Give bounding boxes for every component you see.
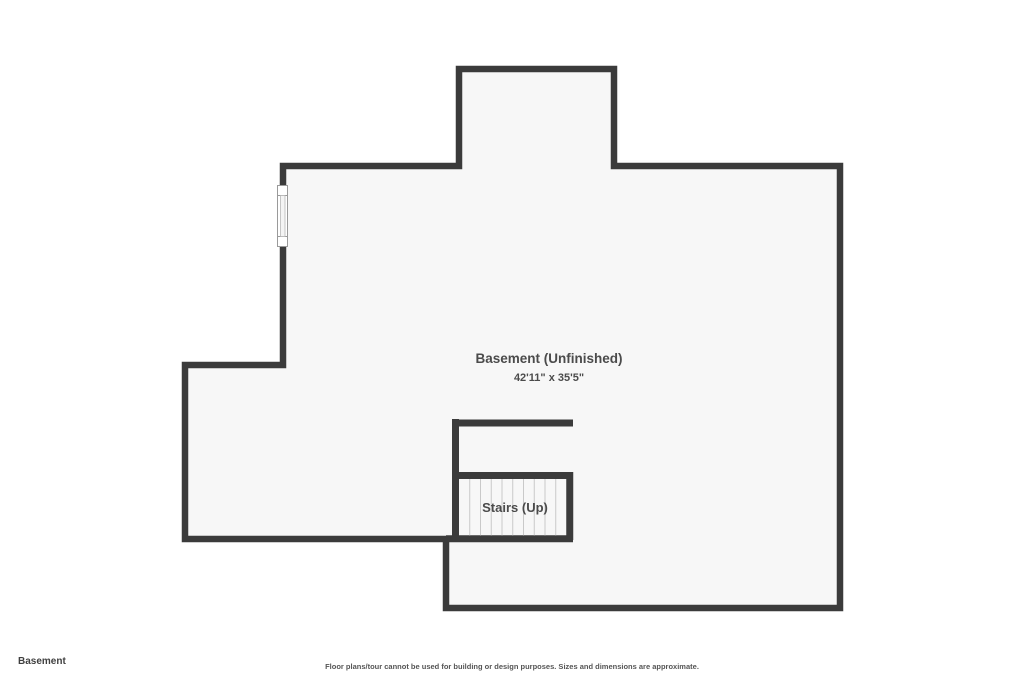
room-dimensions-basement: 42'11" x 35'5" [514,372,584,384]
window-marker [278,186,288,247]
floor-plan-canvas: Basement (Unfinished) 42'11" x 35'5" Sta… [0,0,1024,682]
stairs-label: Stairs (Up) [482,500,548,515]
room-label-basement: Basement (Unfinished) [475,351,622,366]
disclaimer-text: Floor plans/tour cannot be used for buil… [0,662,1024,671]
floor-plan-page: Basement (Unfinished) 42'11" x 35'5" Sta… [0,0,1024,682]
